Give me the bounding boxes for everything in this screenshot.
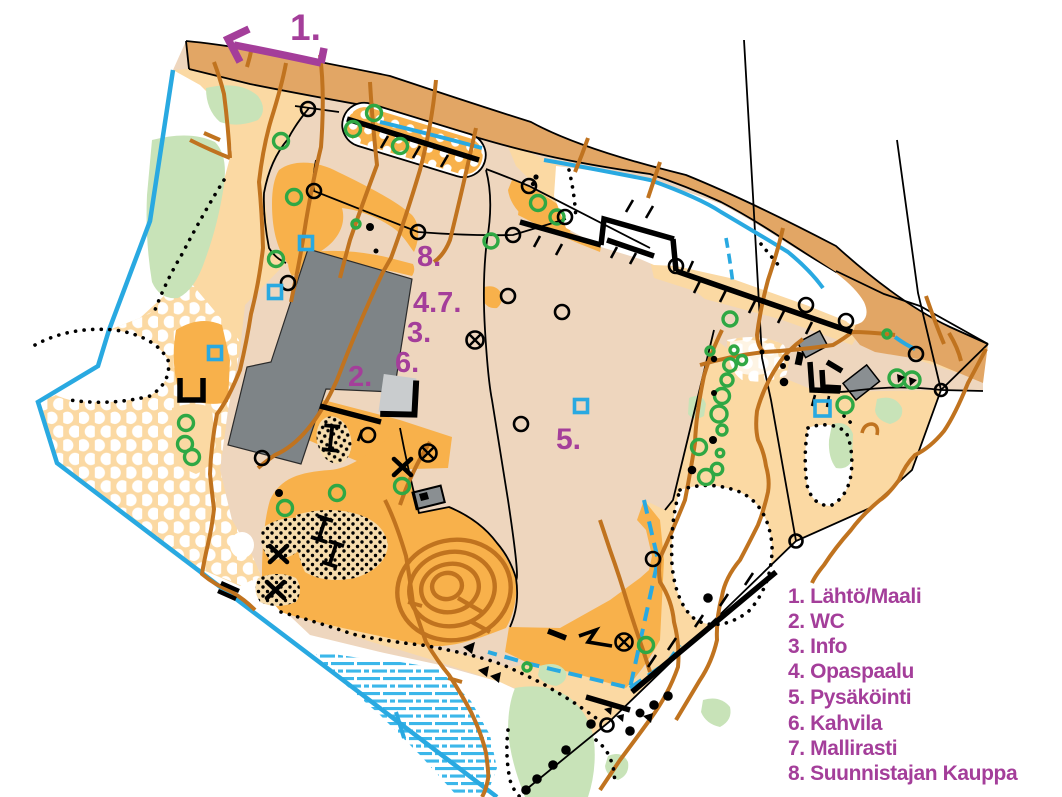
svg-text:3.: 3.	[407, 317, 431, 349]
svg-text:7. Mallirasti: 7. Mallirasti	[788, 737, 897, 760]
svg-text:2. WC: 2. WC	[788, 610, 845, 633]
svg-text:5. Pysäköinti: 5. Pysäköinti	[788, 686, 911, 709]
svg-text:1. Lähtö/Maali: 1. Lähtö/Maali	[788, 585, 921, 608]
svg-text:4.7.: 4.7.	[413, 287, 461, 319]
svg-text:3. Info: 3. Info	[788, 635, 847, 658]
svg-text:6. Kahvila: 6. Kahvila	[788, 712, 883, 735]
svg-text:8. Suunnistajan Kauppa: 8. Suunnistajan Kauppa	[788, 762, 1018, 785]
svg-text:8.: 8.	[417, 241, 441, 273]
svg-text:2.: 2.	[348, 361, 372, 393]
svg-text:6.: 6.	[395, 347, 419, 379]
svg-text:4. Opaspaalu: 4. Opaspaalu	[788, 660, 914, 683]
svg-text:5.: 5.	[556, 423, 581, 456]
svg-text:1.: 1.	[290, 7, 321, 48]
